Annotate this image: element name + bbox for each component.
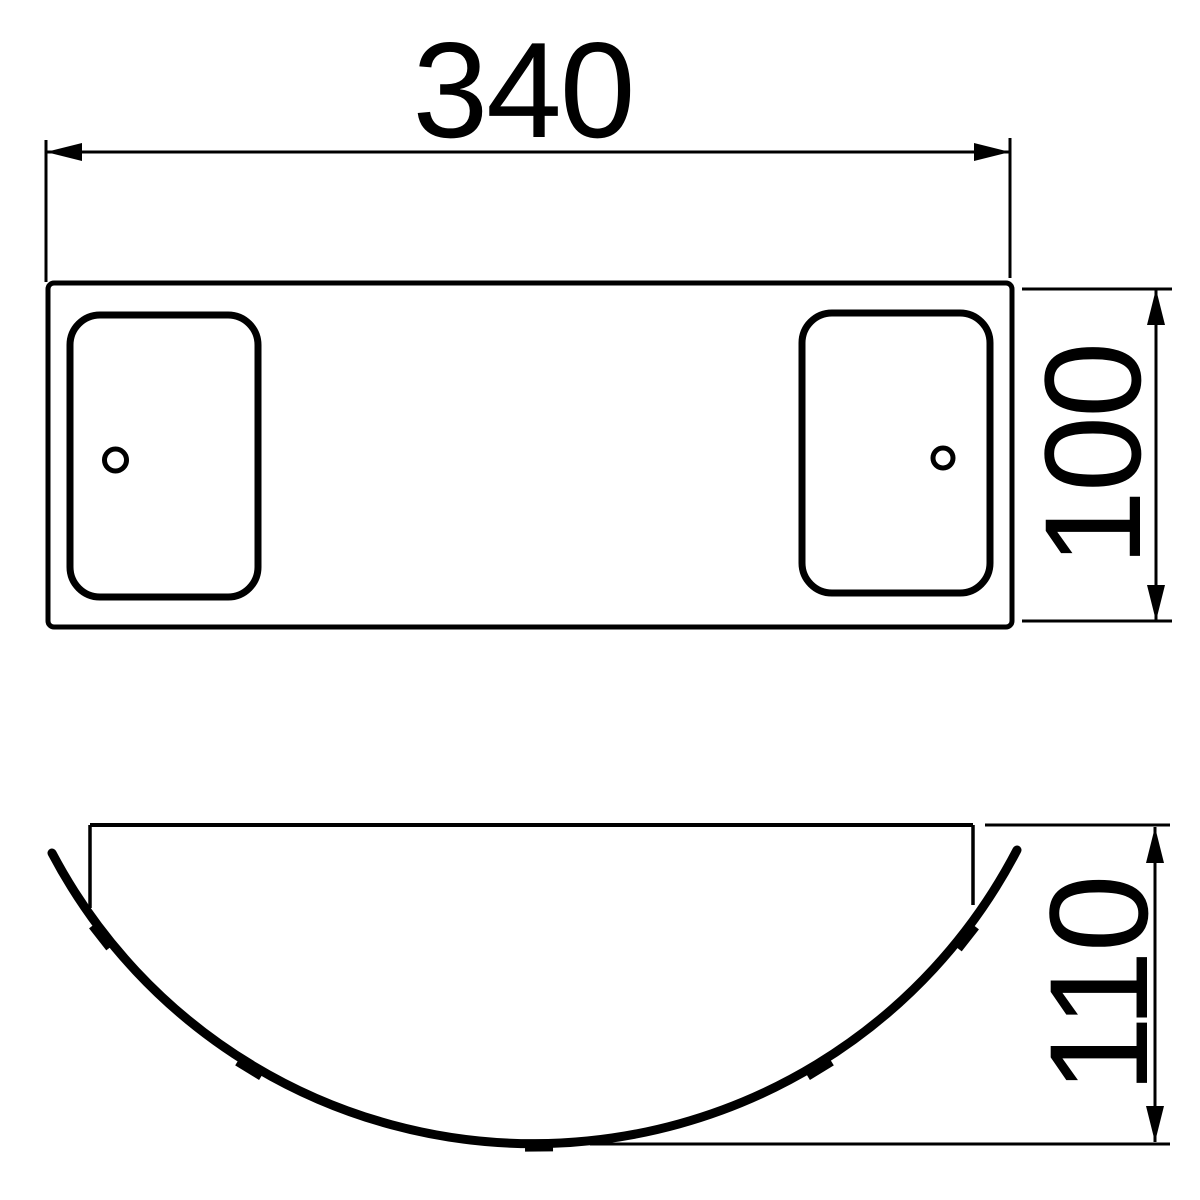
arrowhead-up-icon	[1147, 289, 1165, 325]
depth-dimension: 100	[1017, 289, 1172, 621]
diffuser-arc	[52, 850, 1017, 1144]
right-mounting-hole	[933, 448, 953, 468]
plan-view	[48, 283, 1012, 627]
diffuser-clip	[525, 1140, 553, 1151]
left-mounting-hole	[105, 449, 127, 471]
arrowhead-right-icon	[974, 143, 1010, 161]
right-cutout	[802, 313, 990, 593]
arrowhead-down-icon	[1147, 585, 1165, 621]
wall-light-dimension-drawing: 340 100	[0, 0, 1200, 1200]
housing-outline	[48, 283, 1012, 627]
arrowhead-up-icon	[1146, 827, 1164, 863]
front-view	[52, 825, 1017, 1152]
height-dimension: 110	[590, 825, 1177, 1144]
arrowhead-down-icon	[1146, 1106, 1164, 1142]
height-dimension-label: 110	[1020, 876, 1177, 1093]
technical-drawing-sheet: 340 100	[0, 0, 1200, 1200]
arrowhead-left-icon	[46, 143, 82, 161]
width-dimension-label: 340	[413, 14, 634, 166]
width-dimension: 340	[46, 14, 1010, 282]
left-cutout	[70, 315, 258, 597]
depth-dimension-label: 100	[1017, 344, 1170, 567]
